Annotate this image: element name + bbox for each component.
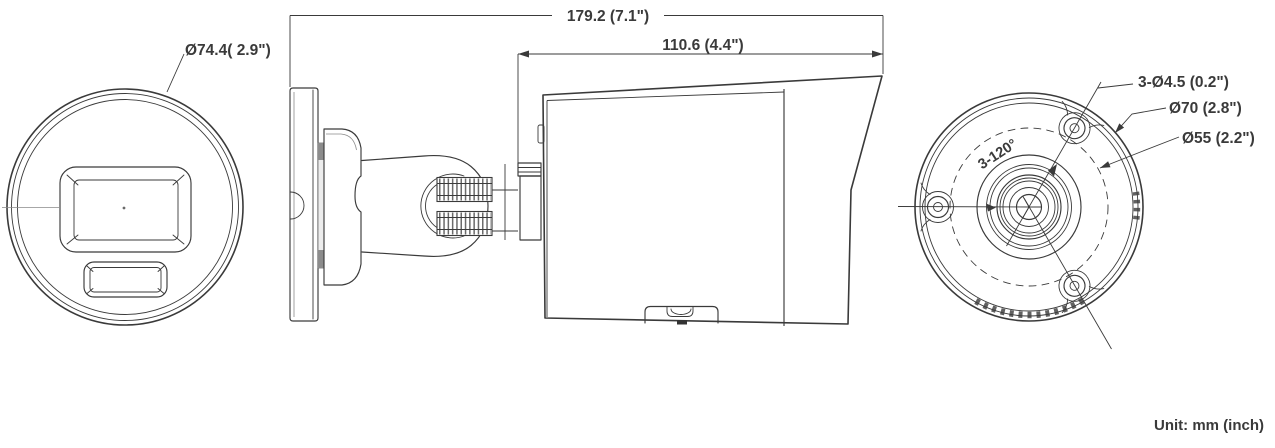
inner-circle-leader [1100,137,1179,168]
camera-body-outline [543,76,882,324]
plate-tab-bump [291,192,305,219]
rear-view: 3-120° 3-Ø4.5 (0.2") Ø70 (2.8") Ø55 (2.2… [898,74,1255,349]
bolt-circle-label: Ø70 (2.8") [1169,100,1242,117]
inner-circle-arrow [1100,161,1111,168]
overall-length-label: 179.2 (7.1") [567,8,649,25]
front-diameter-leader [167,54,184,92]
collar-cap-lines [518,168,541,173]
front-inner-ring [18,100,233,315]
gasket-top [318,143,324,160]
dimensions: 179.2 (7.1") 110.6 (4.4") [290,8,883,167]
lens-center-dot [123,207,126,210]
front-view: Ø74.4( 2.9") [2,42,271,325]
bracket-screw-mark [677,320,687,325]
rim-hatch-right [1136,192,1137,222]
knurl-band-top [437,178,492,202]
dim-arrow-right [872,51,883,58]
collar-cap [518,163,541,176]
centerline-60deg-down [1024,198,1112,349]
gasket-bottom [318,250,324,268]
lens-bevel-tl [67,175,78,185]
ir-window-inner [90,268,161,293]
angle-arrow-horizontal [986,204,996,212]
lens-window-inner [74,180,178,240]
dim-arrow-left [518,51,529,58]
mount-holes-leader [1098,84,1133,88]
ball-joint-outline [362,156,488,257]
front-diameter-label: Ø74.4( 2.9") [185,42,271,59]
knurl-band-bottom [437,212,492,236]
base-dome-inner-line [326,134,357,150]
bracket-screw-arc [671,309,691,315]
collar-body [520,176,541,240]
mount-holes-label: 3-Ø4.5 (0.2") [1138,74,1229,91]
unit-note: Unit: mm (inch) [1154,417,1264,434]
body-length-label: 110.6 (4.4") [662,37,743,54]
base-dome [324,129,361,285]
side-view [290,76,882,326]
front-outer-ring [7,89,243,325]
camera-dimension-drawing: Ø74.4( 2.9") [0,0,1275,448]
inner-circle-label: Ø55 (2.2") [1182,130,1255,147]
gasket-strip [318,143,324,268]
centerline-horizontal [898,207,1032,208]
drawing-canvas: Ø74.4( 2.9") [0,0,1275,448]
bolt-circle-leader [1115,108,1166,133]
front-middle-ring [12,94,239,321]
